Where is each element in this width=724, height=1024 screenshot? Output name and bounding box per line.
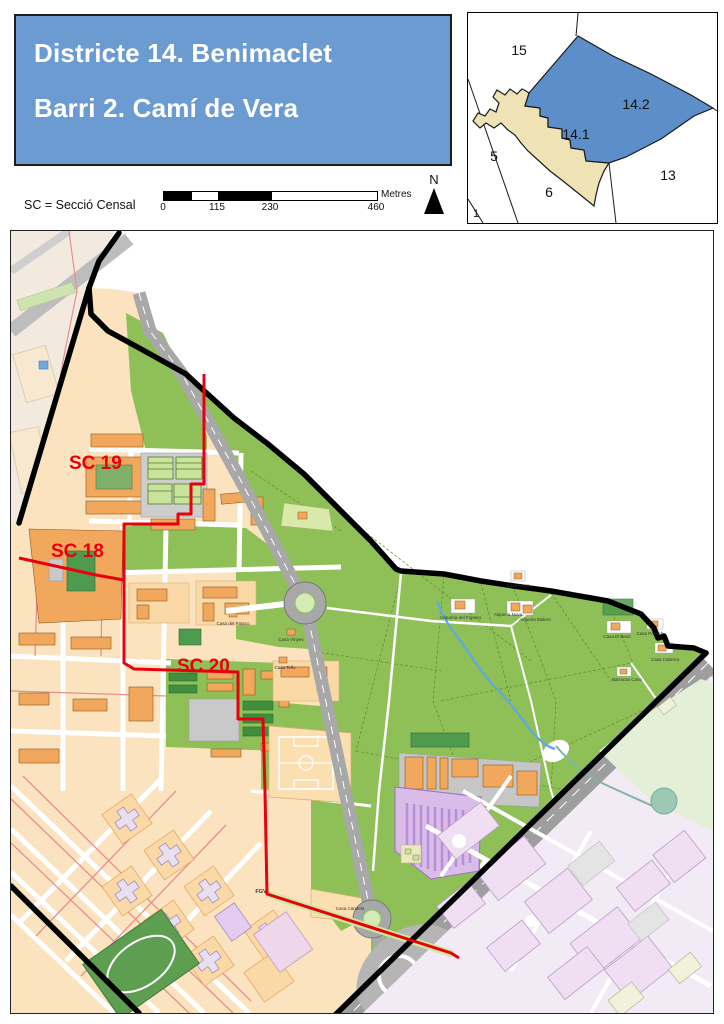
barri-title: Barri 2. Camí de Vera — [34, 93, 450, 124]
inset-locator-map: 15 5 6 13 1 14.1 14.2 — [467, 12, 718, 224]
inset-label-5: 5 — [490, 148, 498, 164]
inset-label-142: 14.2 — [622, 96, 649, 112]
scale-tick-115: 115 — [209, 202, 225, 213]
sc-legend-note: SC = Secció Censal — [24, 198, 136, 212]
scale-tick-230: 230 — [262, 202, 279, 213]
scale-seg-2 — [191, 192, 218, 200]
place-casa-beso: Casa El Besó — [603, 634, 631, 639]
map-title-box: Districte 14. Benimaclet Barri 2. Camí d… — [14, 14, 452, 166]
scale-ticks: 0 115 230 460 — [163, 201, 376, 214]
fgv-label: FGV — [255, 889, 267, 895]
scale-bar-segments — [163, 191, 378, 201]
place-casa-cabrera: Casa Cabrera — [651, 657, 680, 662]
north-label: N — [420, 172, 448, 187]
place-casa-panach: Casa Panach — [636, 631, 664, 636]
place-casa-maya: Casa Maya — [507, 583, 530, 588]
scale-seg-3 — [218, 192, 271, 200]
place-casa-vinyes: Casa Vinyes — [278, 637, 304, 642]
sc18-label: SC 18 — [51, 541, 104, 562]
scale-tick-0: 0 — [160, 202, 166, 213]
inset-svg: 15 5 6 13 1 14.1 14.2 — [468, 13, 717, 223]
main-map: SC 19 SC 18 SC 20 Casa del Pataco Casa V… — [10, 230, 714, 1014]
inset-label-141: 14.1 — [562, 126, 589, 142]
inset-label-6: 6 — [545, 184, 553, 200]
place-casa-tello: Casa Tello — [275, 665, 296, 670]
district-title: Districte 14. Benimaclet — [34, 38, 450, 69]
sc20-label: SC 20 — [177, 656, 230, 677]
scale-seg-4 — [271, 192, 377, 200]
sc19-label: SC 19 — [69, 453, 122, 474]
inset-label-1: 1 — [473, 208, 479, 220]
north-arrow: N — [420, 172, 448, 214]
place-barracas-cano: Barracas Cano — [612, 677, 643, 682]
scale-unit-label: Metres — [381, 189, 412, 200]
main-map-svg: SC 19 SC 18 SC 20 Casa del Pataco Casa V… — [11, 231, 713, 1013]
inset-label-15: 15 — [511, 42, 527, 58]
inset-label-13: 13 — [660, 167, 676, 183]
scale-tick-460: 460 — [368, 202, 385, 213]
place-alqueria-molero: Alqueria Molero — [519, 617, 551, 622]
scale-bar: 0 115 230 460 Metres — [163, 191, 376, 214]
scale-seg-1 — [164, 192, 191, 200]
place-casa-del-pataco: Casa del Pataco — [216, 621, 250, 626]
north-arrow-icon — [424, 188, 444, 214]
place-alqueria-figuero: Alqueria del Figuero — [441, 615, 482, 620]
place-casa-candela: Casa Candela — [336, 906, 365, 911]
